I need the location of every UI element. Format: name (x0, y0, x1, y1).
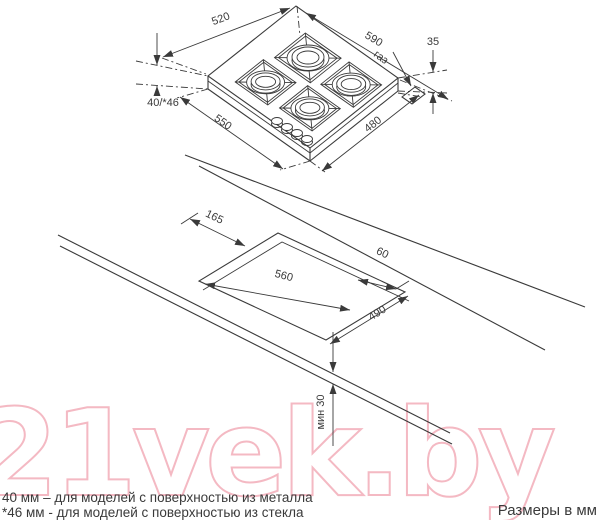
footnote-metal: 40 мм – для моделей с поверхностью из ме… (2, 490, 313, 505)
dimension-label-35: 35 (427, 36, 439, 48)
dimension-label-560: 560 (273, 268, 294, 284)
burner-back (275, 33, 342, 83)
dimension-label-165: 165 (203, 208, 225, 227)
dimension-label-height: 40/*46 (147, 97, 179, 109)
dimension-label-520: 520 (210, 10, 231, 28)
dimension-label-590: 590 (363, 30, 385, 50)
cutout-dimension-560: 560 (205, 268, 350, 310)
hob-diagram: газ 520 590 35 40/*46 (136, 6, 452, 172)
gas-label: газ (371, 48, 390, 66)
technical-drawing: 21vek.by (0, 0, 600, 520)
installation-diagram-page: 21vek.by (0, 0, 600, 520)
cutout-dimension-165: 165 (181, 208, 245, 246)
cutout-dimension-490: 490 (330, 296, 408, 344)
burner-right (321, 62, 382, 107)
dimension-label-490: 490 (366, 304, 388, 324)
hob-dimension-520: 520 (162, 6, 300, 74)
control-knobs (272, 118, 313, 146)
units-note: Размеры в мм (498, 502, 597, 519)
hob-dimension-height: 40/*46 (136, 33, 208, 109)
dimension-label-550: 550 (212, 112, 234, 132)
footnote-glass: *46 мм - для моделей с поверхностью из с… (2, 505, 304, 520)
dimension-label-min30: мин 30 (315, 394, 327, 429)
dimension-label-60: 60 (374, 245, 390, 261)
